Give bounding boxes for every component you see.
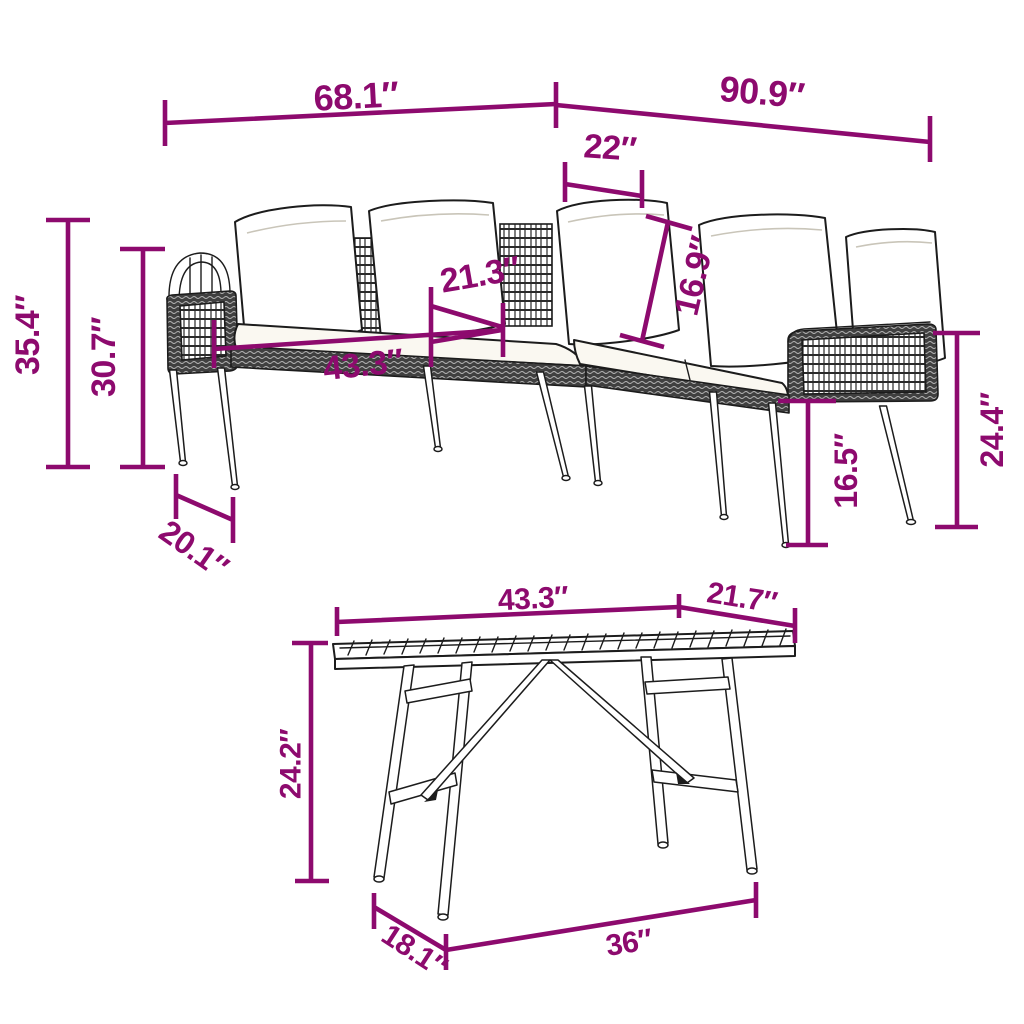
dimension-annotations: 68.1″ 90.9″ 22″ 35.4″ 30.7″ 20.1″ 21.3″ <box>9 68 1010 984</box>
dim-seat-height: 16.5″ <box>778 401 864 545</box>
dim-sofa-left-length: 68.1″ <box>165 73 556 146</box>
dim-label-sofa-side-depth: 20.1″ <box>153 513 235 586</box>
dim-label-sofa-right-length: 90.9″ <box>718 68 806 116</box>
dim-label-arm-height: 24.4″ <box>974 392 1010 467</box>
dim-seat-back-height: 30.7″ <box>85 249 165 467</box>
dim-table-top-length: 43.3″ <box>337 581 679 636</box>
dimension-diagram-svg: 68.1″ 90.9″ 22″ 35.4″ 30.7″ 20.1″ 21.3″ <box>0 0 1024 1024</box>
dim-label-seat-back-height: 30.7″ <box>85 317 123 397</box>
dim-arm-height: 24.4″ <box>933 333 1010 527</box>
sofa-left-armrest <box>167 253 238 374</box>
dim-sofa-side-depth: 20.1″ <box>153 474 235 585</box>
table-left-trestle <box>374 662 472 915</box>
dim-label-seat-height: 16.5″ <box>828 433 864 508</box>
dim-label-table-height: 24.2″ <box>275 729 308 799</box>
dim-sofa-total-height: 35.4″ <box>9 220 90 467</box>
diagram-page: 68.1″ 90.9″ 22″ 35.4″ 30.7″ 20.1″ 21.3″ <box>0 0 1024 1024</box>
dim-label-sofa-left-length: 68.1″ <box>313 73 400 118</box>
dim-label-sofa-total-height: 35.4″ <box>9 295 47 375</box>
dim-label-back-cushion-width: 22″ <box>582 127 637 169</box>
dim-label-table-base-depth: 18.1″ <box>376 918 453 984</box>
dim-label-seat-length: 43.3″ <box>321 342 405 388</box>
sofa-right-armrest <box>788 322 938 402</box>
dim-label-table-base-length: 36″ <box>604 923 655 963</box>
dim-table-height: 24.2″ <box>275 643 330 881</box>
table-illustration <box>333 629 795 920</box>
dim-table-base-length: 36″ <box>446 882 756 963</box>
dim-label-table-top-length: 43.3″ <box>497 581 569 618</box>
dim-back-cushion-width: 22″ <box>565 127 642 208</box>
table-right-trestle <box>641 657 757 870</box>
